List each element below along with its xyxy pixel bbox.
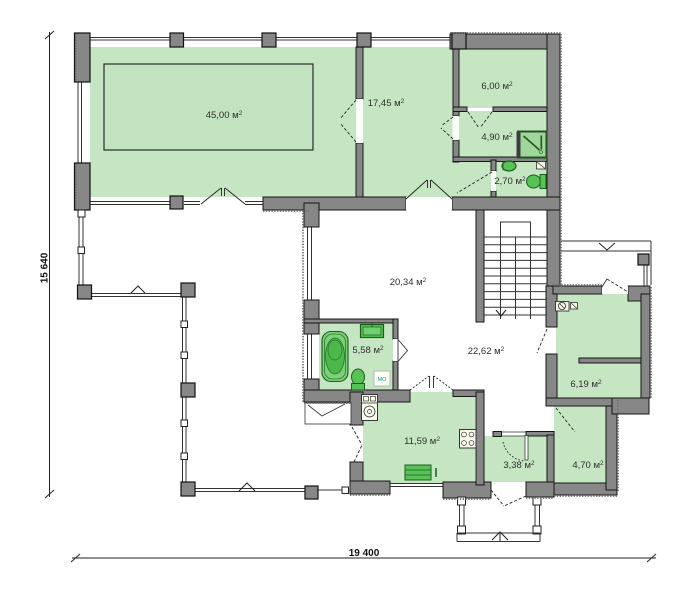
svg-text:17,45 м2: 17,45 м2 (368, 98, 405, 109)
svg-text:6,19 м2: 6,19 м2 (570, 379, 602, 390)
svg-text:11,59 м2: 11,59 м2 (404, 436, 440, 447)
svg-text:4,90 м2: 4,90 м2 (481, 132, 513, 143)
svg-text:МО: МО (378, 377, 388, 383)
svg-text:4,70 м2: 4,70 м2 (572, 460, 604, 471)
svg-text:20,34 м2: 20,34 м2 (390, 277, 427, 288)
svg-text:15 640: 15 640 (40, 252, 51, 283)
svg-text:5,58 м2: 5,58 м2 (352, 345, 384, 356)
svg-text:22,62 м2: 22,62 м2 (468, 346, 505, 357)
svg-text:6,00 м2: 6,00 м2 (481, 81, 513, 92)
svg-text:19 400: 19 400 (349, 548, 380, 559)
svg-text:2,70 м2: 2,70 м2 (494, 176, 526, 187)
svg-text:45,00 м2: 45,00 м2 (206, 110, 243, 121)
svg-text:3,38 м2: 3,38 м2 (503, 460, 535, 471)
